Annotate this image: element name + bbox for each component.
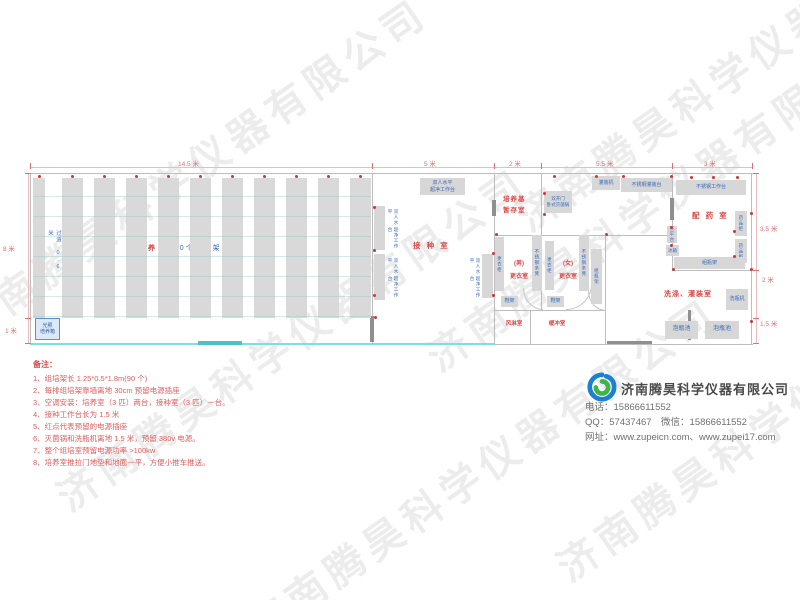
ss-worktable-box: 不锈钢工作台	[676, 180, 746, 195]
power-outlet-dot	[670, 175, 673, 178]
watermark-text: 济南腾昊科学仪器有限公司	[413, 12, 800, 383]
clean-bench-label: 双人水平超净工作台	[387, 258, 399, 298]
wall	[530, 310, 531, 344]
note-item: 7、整个组培室预留电源功率 >100kw	[33, 445, 363, 457]
dim-label-left-bottom: 1 米	[5, 325, 17, 335]
sliding-door	[198, 341, 242, 345]
door	[492, 200, 496, 216]
company-name: 济南腾昊科学仪器有限公司	[621, 379, 789, 398]
company-logo-icon	[587, 372, 617, 402]
power-outlet-dot	[622, 175, 625, 178]
culture-rack	[286, 178, 307, 318]
wall	[751, 173, 752, 344]
power-outlet-dot	[553, 175, 556, 178]
dim-tick	[25, 173, 31, 174]
dim-tick	[753, 343, 759, 344]
shelf-line	[33, 316, 371, 317]
culture-rack	[318, 178, 339, 318]
steel-bench-box: 不锈钢条凳	[579, 235, 589, 291]
medicine-cabinet-box: 药品柜	[735, 211, 747, 236]
power-outlet-dot	[199, 175, 202, 178]
wall	[495, 344, 753, 345]
culture-rack	[62, 178, 83, 318]
power-outlet-dot	[492, 294, 495, 297]
dim-tick	[672, 163, 673, 169]
shoe-rack-box: 鞋架	[501, 296, 518, 307]
wall	[672, 270, 752, 271]
fridge-box: 冰箱	[666, 245, 679, 256]
buffer-room-label: 缓冲室	[537, 319, 577, 327]
shoe-rack-box: 鞋架	[547, 296, 564, 307]
dim-label-right-1: 3.5 米	[760, 223, 777, 233]
note-item: 1、组培架长 1.25*0.5*1.8m(90 个)	[33, 373, 363, 385]
power-outlet-dot	[733, 255, 736, 258]
power-outlet-dot	[103, 175, 106, 178]
power-outlet-dot	[750, 320, 753, 323]
note-item: 2、每排组培架靠墙离地 30cm 预留电源插座	[33, 385, 363, 397]
shelf-line	[33, 236, 371, 237]
company-phone: 电话：15866611552	[585, 399, 671, 413]
culture-rack	[222, 178, 243, 318]
power-outlet-dot	[690, 176, 693, 179]
wall	[494, 310, 605, 311]
male-changing-room-label: (男)更衣室	[506, 258, 532, 284]
power-outlet-dot	[670, 244, 673, 247]
light-incubator-box: 光照培养箱	[35, 318, 60, 340]
shelf-line	[33, 216, 371, 217]
power-outlet-dot	[231, 175, 234, 178]
culture-rack	[350, 178, 371, 318]
dim-tick	[494, 163, 495, 169]
inoculation-room-label: 接 种 室	[413, 240, 450, 251]
power-outlet-dot	[672, 268, 675, 271]
power-outlet-dot	[543, 192, 546, 195]
dim-tick	[30, 163, 31, 169]
dim-label-inoculation-width: 5 米	[424, 158, 436, 168]
power-outlet-dot	[295, 175, 298, 178]
dim-tick	[25, 343, 31, 344]
note-item: 8、培养室推拉门地垫和地面一平，方便小推车推送。	[33, 457, 363, 469]
door-arc	[523, 288, 543, 310]
shelf-line	[33, 276, 371, 277]
clean-bench-box	[482, 254, 493, 298]
power-outlet-dot	[670, 226, 673, 229]
dim-label-pharmacy-width: 3 米	[704, 158, 716, 168]
dim-label-right-3: 1.5 米	[760, 318, 777, 328]
shelf-line	[33, 256, 371, 257]
dim-tick	[372, 163, 373, 169]
culture-rack	[94, 178, 115, 318]
notes-section: 备注： 1、组培架长 1.25*0.5*1.8m(90 个) 2、每排组培架靠墙…	[33, 359, 363, 469]
power-outlet-dot	[374, 316, 377, 319]
ss-filling-table-box: 不锈钢灌装台	[621, 178, 672, 192]
company-website: 网址：www.zupeicn.com、www.zupei17.com	[585, 429, 776, 443]
soaking-pool-box: 泡瓶池	[665, 321, 698, 339]
washing-room-label: 洗涤、灌装室	[664, 289, 712, 299]
power-outlet-dot	[373, 249, 376, 252]
door	[670, 198, 674, 220]
note-item: 6、灭菌锅和洗瓶机离地 1.5 米，预留 380v 电源。	[33, 433, 363, 445]
culture-rack	[33, 178, 45, 318]
dim-label-medium-width: 2 米	[509, 158, 521, 168]
power-outlet-dot	[543, 213, 546, 216]
wall	[30, 173, 753, 174]
power-outlet-dot	[495, 233, 498, 236]
wall	[605, 235, 606, 344]
clean-bench-box	[374, 206, 385, 250]
door	[370, 316, 374, 342]
filling-machine-box: 灌装机	[592, 176, 620, 190]
culture-rack	[190, 178, 211, 318]
notes-title: 备注：	[33, 359, 363, 370]
soaking-pool-box: 泡瓶池	[705, 321, 739, 339]
medium-storage-label: 培养基暂存室	[503, 194, 526, 216]
locker-box: 更衣柜	[545, 241, 554, 290]
bottle-rack-box: 组瓶架	[674, 257, 745, 269]
company-qq-wechat: QQ：57437467 微信：15866611552	[585, 414, 747, 428]
culture-rack	[254, 178, 275, 318]
clean-bench-label: 双人水平超净工作台	[387, 209, 399, 249]
culture-rack	[158, 178, 179, 318]
shelf-line	[33, 296, 371, 297]
power-outlet-dot	[736, 176, 739, 179]
dim-label-culture-width: 14.5 米	[178, 158, 199, 168]
bottle-washer-box: 洗瓶机	[726, 289, 748, 310]
clean-bench-label: 双人水平超净工作台	[469, 258, 481, 298]
dim-label-sterilizer-width: 5.5 米	[596, 158, 613, 168]
power-outlet-dot	[38, 175, 41, 178]
power-outlet-dot	[327, 175, 330, 178]
note-item: 4、接种工作台长为 1.5 米	[33, 409, 363, 421]
glass-wall	[30, 343, 495, 345]
door	[607, 341, 652, 344]
shelf-line	[33, 196, 371, 197]
power-outlet-dot	[373, 206, 376, 209]
dim-tick	[753, 270, 759, 271]
power-outlet-dot	[492, 252, 495, 255]
clean-bench-box	[374, 254, 385, 300]
dim-label-right-2: 2 米	[762, 274, 774, 284]
power-outlet-dot	[135, 175, 138, 178]
dim-tick	[541, 163, 542, 169]
note-item: 3、空调安装：培养室（3 匹）两台，接种室（3 匹）一台。	[33, 397, 363, 409]
bottle-rack-box: 组瓶架	[591, 249, 602, 304]
power-outlet-dot	[167, 175, 170, 178]
locker-box: 更衣柜	[495, 237, 504, 291]
culture-rack	[126, 178, 147, 318]
power-outlet-dot	[359, 175, 362, 178]
power-outlet-dot	[750, 212, 753, 215]
female-changing-room-label: (女)更衣室	[555, 258, 581, 284]
dim-label-left-height: 8 米	[3, 243, 15, 253]
clean-bench-box: 双人水平超净工作台	[420, 178, 465, 195]
power-outlet-dot	[595, 175, 598, 178]
air-shower-room-label: 风淋室	[498, 319, 530, 327]
power-outlet-dot	[263, 175, 266, 178]
steel-bench-box: 不锈钢条凳	[532, 235, 542, 291]
note-item: 5、红点代表预留的电源插座	[33, 421, 363, 433]
dim-tick	[25, 318, 31, 319]
dim-tick	[753, 173, 759, 174]
power-outlet-dot	[373, 294, 376, 297]
pharmacy-room-label: 配 药 室	[692, 210, 729, 221]
power-outlet-dot	[712, 176, 715, 179]
power-outlet-dot	[605, 233, 608, 236]
dim-tick	[753, 318, 759, 319]
dimension-line-top	[30, 167, 753, 168]
dim-tick	[752, 163, 753, 169]
power-outlet-dot	[71, 175, 74, 178]
aisle-label: 过道 0.6 米	[46, 230, 62, 280]
sterilizer-box: 双开门卧式灭菌锅	[544, 191, 572, 213]
power-outlet-dot	[733, 230, 736, 233]
